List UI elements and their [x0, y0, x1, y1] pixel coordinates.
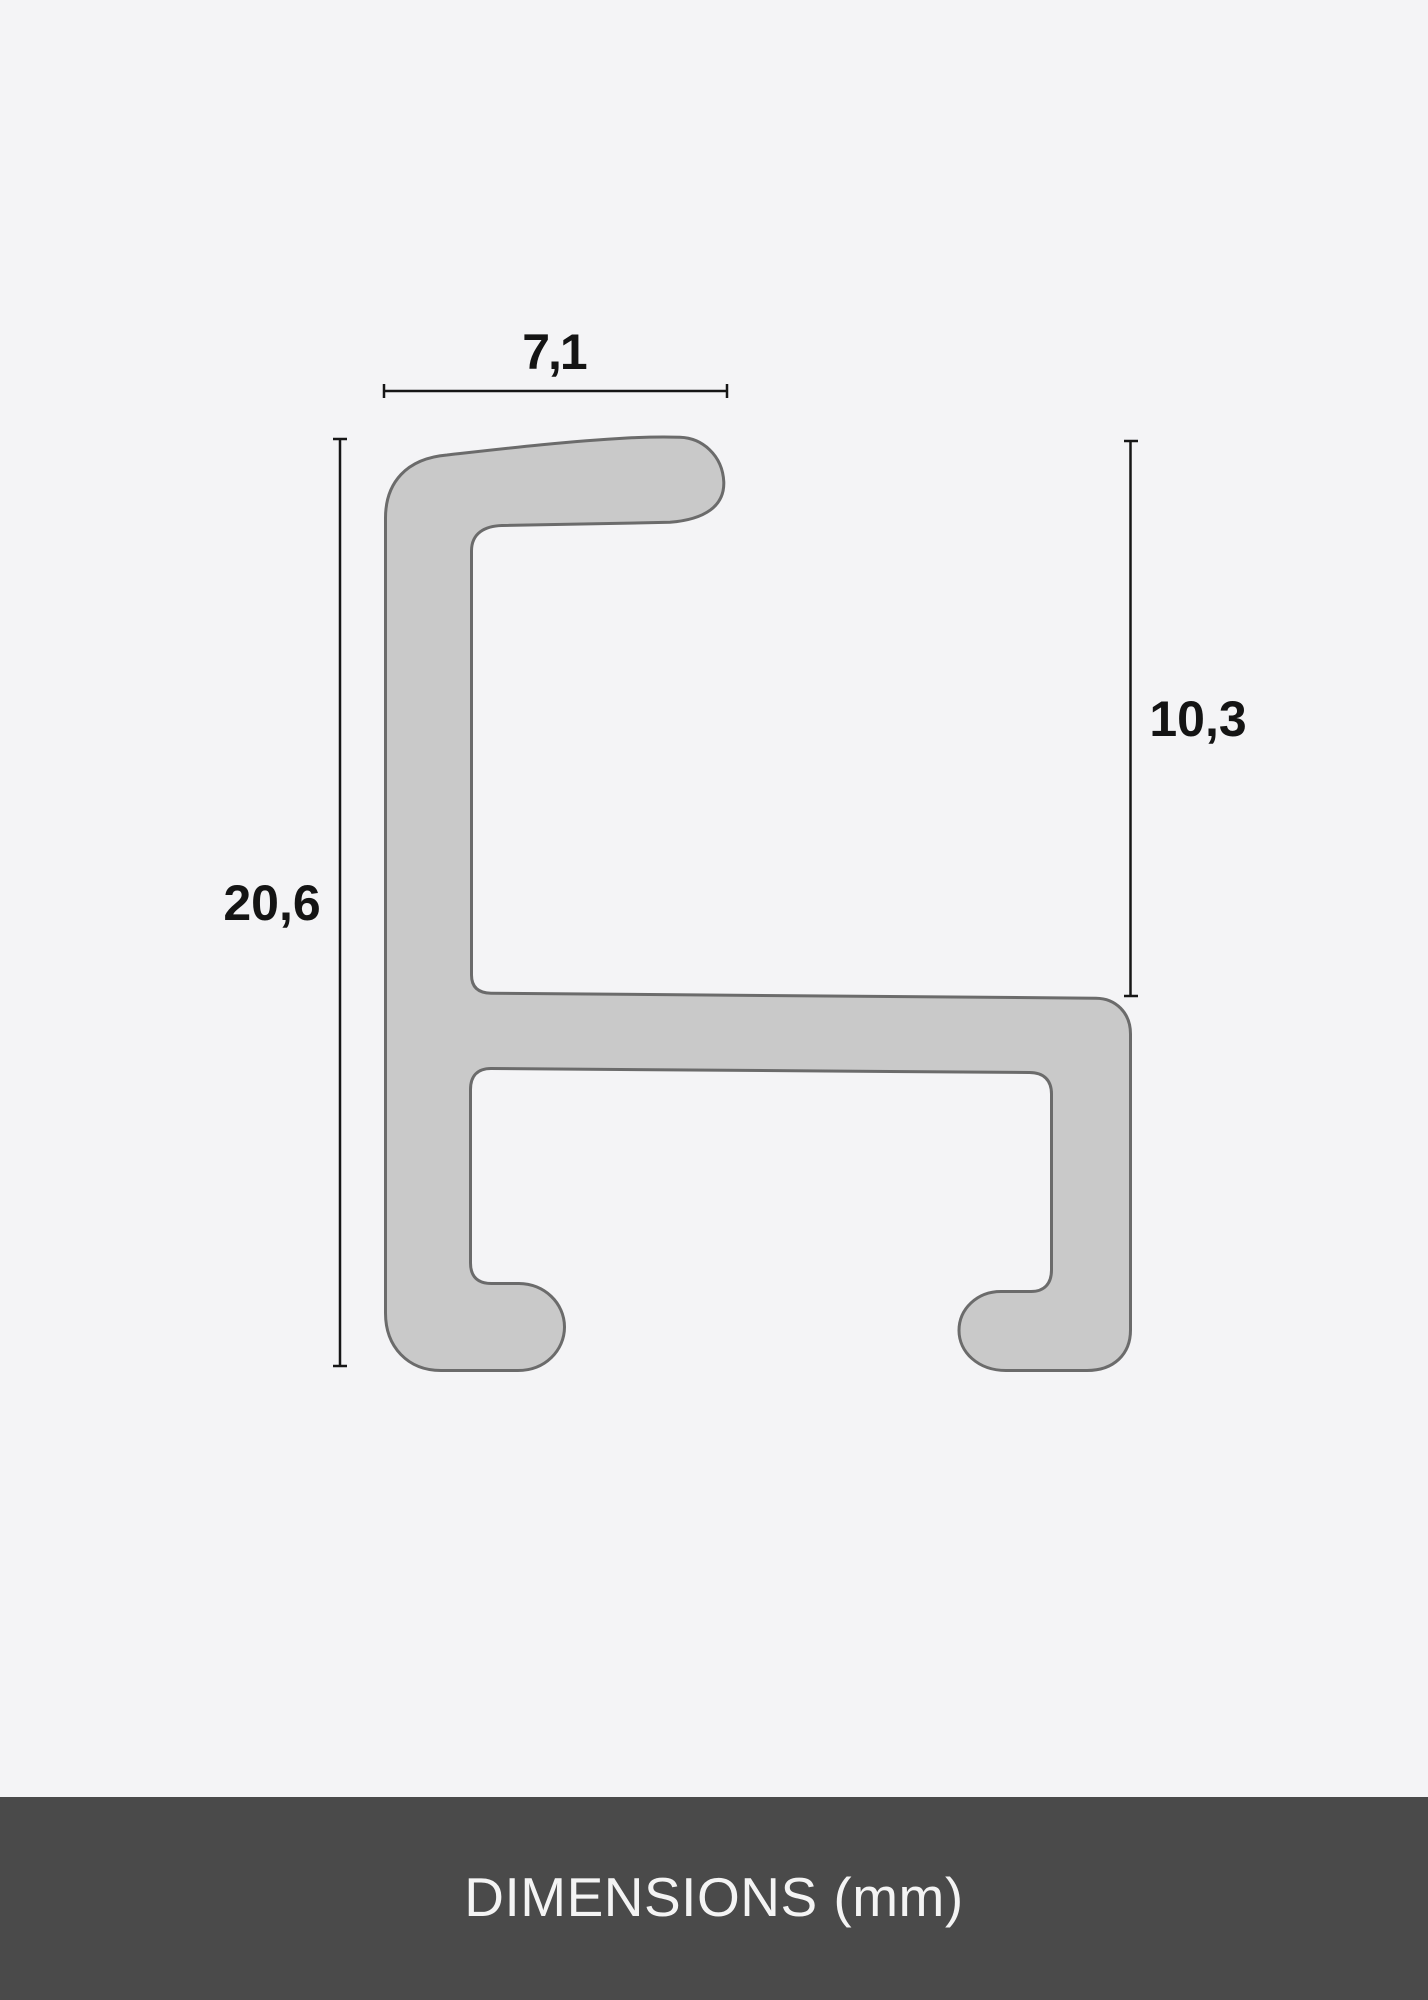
svg-text:20,6: 20,6 [223, 875, 320, 931]
svg-text:7,1: 7,1 [522, 324, 587, 380]
svg-text:10,3: 10,3 [1149, 691, 1246, 747]
svg-text:DIMENSIONS (mm): DIMENSIONS (mm) [464, 1866, 963, 1928]
